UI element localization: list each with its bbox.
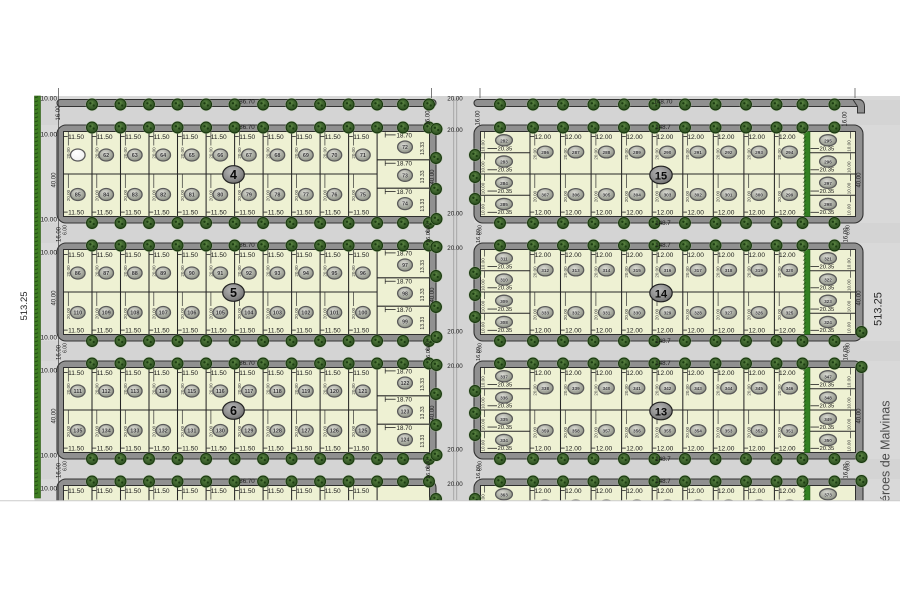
svg-text:40.00: 40.00 <box>857 172 863 188</box>
svg-text:305: 305 <box>602 193 610 198</box>
svg-text:20.00: 20.00 <box>655 266 660 278</box>
svg-text:11.50: 11.50 <box>125 134 141 141</box>
svg-text:11.50: 11.50 <box>211 446 227 453</box>
svg-text:20.00: 20.00 <box>594 308 599 320</box>
svg-text:12.00: 12.00 <box>779 252 796 259</box>
svg-text:20.00: 20.00 <box>777 426 782 438</box>
svg-text:11.50: 11.50 <box>211 328 227 335</box>
svg-text:82: 82 <box>160 193 166 199</box>
svg-text:20.00: 20.00 <box>594 384 599 396</box>
svg-text:20.00: 20.00 <box>716 384 721 396</box>
svg-text:96: 96 <box>360 271 366 277</box>
svg-text:12.00: 12.00 <box>718 370 735 377</box>
svg-text:13.33: 13.33 <box>420 406 426 419</box>
svg-text:10.00: 10.00 <box>481 182 486 194</box>
svg-text:287: 287 <box>572 150 580 155</box>
svg-text:126: 126 <box>330 429 339 435</box>
svg-text:20.00: 20.00 <box>746 308 751 320</box>
svg-text:128: 128 <box>273 429 282 435</box>
svg-text:6.00: 6.00 <box>846 225 852 235</box>
svg-text:20.35: 20.35 <box>820 446 835 452</box>
svg-text:92: 92 <box>246 271 252 277</box>
svg-text:20.00: 20.00 <box>624 384 629 396</box>
svg-text:40.00: 40.00 <box>52 408 58 424</box>
svg-text:115: 115 <box>187 389 196 395</box>
svg-text:11.50: 11.50 <box>97 252 113 259</box>
svg-text:20.35: 20.35 <box>498 307 513 313</box>
svg-text:91: 91 <box>217 271 223 277</box>
svg-text:283: 283 <box>500 160 508 165</box>
svg-text:20.00: 20.00 <box>447 481 463 488</box>
svg-text:106: 106 <box>187 311 196 317</box>
svg-text:10.00: 10.00 <box>481 279 486 291</box>
svg-text:40.00: 40.00 <box>857 408 863 424</box>
svg-text:12.00: 12.00 <box>779 210 796 217</box>
svg-text:71: 71 <box>360 153 366 159</box>
svg-text:11.50: 11.50 <box>268 370 284 377</box>
svg-text:350: 350 <box>824 438 832 443</box>
svg-text:11.50: 11.50 <box>125 328 141 335</box>
svg-text:330: 330 <box>633 311 641 316</box>
svg-text:20.35: 20.35 <box>820 307 835 313</box>
svg-text:12.00: 12.00 <box>779 446 796 453</box>
svg-text:20.00: 20.00 <box>685 308 690 320</box>
svg-text:302: 302 <box>694 193 702 198</box>
svg-text:40.00: 40.00 <box>430 405 436 421</box>
svg-text:12.00: 12.00 <box>565 370 582 377</box>
svg-text:20.00: 20.00 <box>594 190 599 202</box>
svg-text:67: 67 <box>246 153 252 159</box>
svg-text:314: 314 <box>602 268 610 273</box>
svg-text:20.35: 20.35 <box>498 328 513 334</box>
svg-text:11.50: 11.50 <box>182 210 198 217</box>
svg-text:97: 97 <box>402 263 408 269</box>
svg-text:20.00: 20.00 <box>563 308 568 320</box>
svg-text:76: 76 <box>331 193 337 199</box>
svg-text:132: 132 <box>159 429 168 435</box>
svg-text:20.00: 20.00 <box>447 211 463 218</box>
svg-text:11.50: 11.50 <box>182 134 198 141</box>
svg-text:111: 111 <box>74 389 83 395</box>
svg-text:12.00: 12.00 <box>718 252 735 259</box>
svg-text:308: 308 <box>500 320 508 325</box>
svg-text:12.00: 12.00 <box>626 446 643 453</box>
svg-text:10.00: 10.00 <box>481 440 486 452</box>
svg-text:11.50: 11.50 <box>68 252 84 259</box>
svg-text:11.50: 11.50 <box>68 488 84 495</box>
svg-text:122: 122 <box>401 381 410 387</box>
svg-text:20.00: 20.00 <box>624 266 629 278</box>
svg-text:148.7: 148.7 <box>655 124 671 131</box>
svg-text:148.7: 148.7 <box>655 338 671 345</box>
svg-text:11.50: 11.50 <box>97 370 113 377</box>
svg-text:118: 118 <box>273 389 282 395</box>
svg-text:78: 78 <box>274 193 280 199</box>
svg-text:12.00: 12.00 <box>749 488 766 495</box>
svg-text:11.50: 11.50 <box>182 252 198 259</box>
svg-text:11.50: 11.50 <box>211 488 227 495</box>
svg-text:110: 110 <box>73 311 82 317</box>
svg-text:107: 107 <box>159 311 168 317</box>
svg-text:75: 75 <box>360 193 366 199</box>
svg-text:12.00: 12.00 <box>626 328 643 335</box>
svg-text:20.35: 20.35 <box>820 264 835 270</box>
svg-text:10.00: 10.00 <box>41 217 58 224</box>
svg-text:20.00: 20.00 <box>447 245 463 252</box>
svg-text:342: 342 <box>664 386 672 391</box>
svg-text:20.00: 20.00 <box>594 426 599 438</box>
svg-text:12.00: 12.00 <box>687 252 704 259</box>
svg-text:11.50: 11.50 <box>68 134 84 141</box>
svg-text:11.50: 11.50 <box>268 252 284 259</box>
svg-text:4: 4 <box>230 168 237 182</box>
svg-text:10.00: 10.00 <box>41 96 58 103</box>
svg-text:119: 119 <box>301 389 310 395</box>
svg-text:346: 346 <box>786 386 794 391</box>
svg-text:20.35: 20.35 <box>498 189 513 195</box>
svg-text:20.00: 20.00 <box>655 190 660 202</box>
svg-text:328: 328 <box>694 311 702 316</box>
svg-text:358: 358 <box>572 429 580 434</box>
svg-text:20.35: 20.35 <box>498 264 513 270</box>
svg-text:282: 282 <box>500 138 508 143</box>
svg-text:326: 326 <box>755 311 763 316</box>
svg-text:148.7: 148.7 <box>655 242 671 249</box>
svg-text:12.00: 12.00 <box>596 488 613 495</box>
svg-text:12.00: 12.00 <box>749 370 766 377</box>
svg-text:11.50: 11.50 <box>182 370 198 377</box>
svg-text:127: 127 <box>301 429 310 435</box>
svg-text:6.00: 6.00 <box>426 341 432 351</box>
svg-text:15: 15 <box>655 171 667 183</box>
svg-text:12.00: 12.00 <box>687 134 704 141</box>
svg-text:11.50: 11.50 <box>211 210 227 217</box>
svg-text:303: 303 <box>664 193 672 198</box>
svg-text:10.00: 10.00 <box>847 322 852 334</box>
svg-text:10.00: 10.00 <box>481 322 486 334</box>
svg-text:10.00: 10.00 <box>41 132 58 139</box>
svg-text:77: 77 <box>303 193 309 199</box>
svg-text:20.00: 20.00 <box>746 266 751 278</box>
svg-text:10.00: 10.00 <box>481 204 486 216</box>
svg-text:11.50: 11.50 <box>154 446 170 453</box>
svg-text:102: 102 <box>301 311 310 317</box>
svg-text:286: 286 <box>541 150 549 155</box>
svg-text:11.50: 11.50 <box>125 488 141 495</box>
svg-text:86.70: 86.70 <box>239 99 255 106</box>
svg-text:20.00: 20.00 <box>746 426 751 438</box>
svg-text:324: 324 <box>824 320 832 325</box>
svg-text:74: 74 <box>402 202 408 208</box>
svg-text:20.00: 20.00 <box>777 384 782 396</box>
svg-text:12.00: 12.00 <box>596 252 613 259</box>
svg-text:20.35: 20.35 <box>820 210 835 216</box>
svg-text:11.50: 11.50 <box>97 328 113 335</box>
svg-text:6.00: 6.00 <box>63 343 69 353</box>
svg-text:101: 101 <box>330 311 339 317</box>
svg-text:295: 295 <box>824 138 832 143</box>
svg-text:11.50: 11.50 <box>154 252 170 259</box>
svg-text:12.00: 12.00 <box>749 134 766 141</box>
svg-text:11.50: 11.50 <box>353 210 369 217</box>
svg-text:130: 130 <box>216 429 225 435</box>
svg-text:284: 284 <box>500 181 508 186</box>
svg-text:100: 100 <box>358 311 367 317</box>
svg-text:296: 296 <box>824 160 832 165</box>
svg-text:16.00: 16.00 <box>476 110 482 126</box>
svg-text:83: 83 <box>132 193 138 199</box>
svg-text:336: 336 <box>500 396 508 401</box>
svg-text:80: 80 <box>217 193 223 199</box>
svg-text:20.00: 20.00 <box>716 190 721 202</box>
svg-text:11.50: 11.50 <box>97 210 113 217</box>
svg-text:14: 14 <box>655 289 668 301</box>
svg-text:11.50: 11.50 <box>68 446 84 453</box>
svg-text:12.00: 12.00 <box>718 488 735 495</box>
svg-text:12.00: 12.00 <box>749 446 766 453</box>
svg-text:10.00: 10.00 <box>847 258 852 270</box>
svg-text:11.50: 11.50 <box>154 488 170 495</box>
svg-text:5: 5 <box>230 286 237 300</box>
svg-text:12.00: 12.00 <box>687 446 704 453</box>
svg-text:6.00: 6.00 <box>63 225 69 235</box>
svg-text:13.33: 13.33 <box>420 170 426 183</box>
svg-text:285: 285 <box>500 202 508 207</box>
svg-text:11.50: 11.50 <box>353 328 369 335</box>
svg-text:363: 363 <box>500 492 508 497</box>
svg-text:334: 334 <box>500 438 508 443</box>
svg-text:87: 87 <box>103 271 109 277</box>
svg-text:64: 64 <box>160 153 167 159</box>
svg-text:332: 332 <box>572 311 580 316</box>
svg-text:11.50: 11.50 <box>182 446 198 453</box>
svg-text:20.00: 20.00 <box>746 190 751 202</box>
svg-text:331: 331 <box>602 311 610 316</box>
svg-text:351: 351 <box>786 429 794 434</box>
svg-text:10.00: 10.00 <box>847 279 852 291</box>
svg-text:12.00: 12.00 <box>535 252 552 259</box>
svg-text:12.00: 12.00 <box>779 328 796 335</box>
svg-text:11.50: 11.50 <box>296 446 312 453</box>
svg-text:20.35: 20.35 <box>820 189 835 195</box>
svg-text:12.00: 12.00 <box>687 370 704 377</box>
svg-text:10.00: 10.00 <box>847 204 852 216</box>
svg-text:112: 112 <box>102 389 111 395</box>
svg-text:10.00: 10.00 <box>41 453 58 460</box>
svg-text:12.00: 12.00 <box>657 446 674 453</box>
svg-text:11.50: 11.50 <box>211 134 227 141</box>
svg-text:10.00: 10.00 <box>481 418 486 430</box>
svg-text:120: 120 <box>330 389 339 395</box>
svg-text:317: 317 <box>694 268 702 273</box>
svg-text:10.00: 10.00 <box>847 300 852 312</box>
svg-text:11.50: 11.50 <box>239 488 255 495</box>
svg-text:12.00: 12.00 <box>535 446 552 453</box>
svg-text:18.70: 18.70 <box>397 425 413 432</box>
svg-text:134: 134 <box>102 429 112 435</box>
svg-text:10.00: 10.00 <box>847 440 852 452</box>
svg-text:11.50: 11.50 <box>353 488 369 495</box>
svg-text:11.50: 11.50 <box>325 446 341 453</box>
svg-text:11.50: 11.50 <box>353 446 369 453</box>
svg-text:355: 355 <box>664 429 672 434</box>
svg-text:20.35: 20.35 <box>820 382 835 388</box>
svg-text:11.50: 11.50 <box>154 328 170 335</box>
svg-text:69: 69 <box>303 153 309 159</box>
svg-text:345: 345 <box>755 386 763 391</box>
svg-text:20.00: 20.00 <box>716 266 721 278</box>
svg-text:341: 341 <box>633 386 641 391</box>
svg-text:12.00: 12.00 <box>596 134 613 141</box>
svg-text:11.50: 11.50 <box>239 328 255 335</box>
svg-text:72: 72 <box>402 145 408 151</box>
svg-text:10.00: 10.00 <box>847 418 852 430</box>
svg-text:18.70: 18.70 <box>397 279 413 286</box>
svg-text:131: 131 <box>187 429 196 435</box>
svg-text:20.00: 20.00 <box>746 148 751 160</box>
svg-text:13.33: 13.33 <box>420 260 426 273</box>
svg-text:6.00: 6.00 <box>63 461 69 471</box>
svg-text:10.00: 10.00 <box>41 368 58 375</box>
svg-text:20.00: 20.00 <box>777 148 782 160</box>
svg-text:66: 66 <box>217 153 223 159</box>
svg-text:10.00: 10.00 <box>481 258 486 270</box>
svg-text:20.35: 20.35 <box>498 425 513 431</box>
svg-text:123: 123 <box>401 409 410 415</box>
svg-text:20.00: 20.00 <box>777 190 782 202</box>
svg-text:20.35: 20.35 <box>498 286 513 292</box>
svg-text:18.70: 18.70 <box>397 307 413 314</box>
svg-text:12.00: 12.00 <box>749 328 766 335</box>
svg-text:12.00: 12.00 <box>779 488 796 495</box>
svg-text:10.00: 10.00 <box>481 397 486 409</box>
svg-text:20.00: 20.00 <box>655 308 660 320</box>
svg-text:13.33: 13.33 <box>420 435 426 448</box>
svg-text:12.00: 12.00 <box>657 252 674 259</box>
svg-text:20.00: 20.00 <box>655 148 660 160</box>
svg-text:312: 312 <box>541 268 549 273</box>
svg-text:10.00: 10.00 <box>41 335 58 342</box>
svg-text:349: 349 <box>824 417 832 422</box>
svg-text:11.50: 11.50 <box>296 210 312 217</box>
svg-text:339: 339 <box>572 386 580 391</box>
svg-text:84: 84 <box>103 193 110 199</box>
svg-text:20.00: 20.00 <box>447 329 463 336</box>
svg-text:20.35: 20.35 <box>820 168 835 174</box>
svg-text:20.00: 20.00 <box>685 190 690 202</box>
svg-text:322: 322 <box>824 278 832 283</box>
svg-text:20.00: 20.00 <box>563 384 568 396</box>
svg-text:12.00: 12.00 <box>596 446 613 453</box>
svg-text:343: 343 <box>694 386 702 391</box>
svg-text:12.00: 12.00 <box>718 446 735 453</box>
svg-text:10.00: 10.00 <box>847 182 852 194</box>
svg-text:12.00: 12.00 <box>535 210 552 217</box>
svg-text:319: 319 <box>755 268 763 273</box>
svg-text:20.00: 20.00 <box>655 426 660 438</box>
svg-text:86.70: 86.70 <box>239 124 255 131</box>
svg-text:12.00: 12.00 <box>626 488 643 495</box>
svg-text:20.00: 20.00 <box>594 266 599 278</box>
svg-text:309: 309 <box>500 299 508 304</box>
svg-text:89: 89 <box>160 271 166 277</box>
svg-text:11.50: 11.50 <box>68 370 84 377</box>
svg-text:327: 327 <box>725 311 733 316</box>
svg-text:20.00: 20.00 <box>685 384 690 396</box>
svg-text:20.00: 20.00 <box>563 426 568 438</box>
svg-text:11.50: 11.50 <box>325 328 341 335</box>
svg-text:11.50: 11.50 <box>154 370 170 377</box>
svg-text:12.00: 12.00 <box>779 370 796 377</box>
svg-text:18.70: 18.70 <box>397 189 413 196</box>
svg-text:6: 6 <box>230 404 237 418</box>
svg-text:353: 353 <box>725 429 733 434</box>
svg-text:11.50: 11.50 <box>182 488 198 495</box>
svg-text:86: 86 <box>75 271 81 277</box>
svg-text:348: 348 <box>824 396 832 401</box>
svg-text:12.00: 12.00 <box>779 134 796 141</box>
svg-text:94: 94 <box>303 271 310 277</box>
svg-text:20.00: 20.00 <box>563 266 568 278</box>
svg-text:88: 88 <box>132 271 138 277</box>
svg-text:13: 13 <box>655 407 667 419</box>
svg-text:6.00: 6.00 <box>478 225 484 235</box>
svg-text:86.70: 86.70 <box>239 242 255 249</box>
svg-text:321: 321 <box>824 256 832 261</box>
svg-text:20.00: 20.00 <box>685 148 690 160</box>
svg-text:10.00: 10.00 <box>847 376 852 388</box>
svg-text:338: 338 <box>541 386 549 391</box>
svg-text:12.00: 12.00 <box>687 488 704 495</box>
svg-text:11.50: 11.50 <box>97 446 113 453</box>
svg-text:18.70: 18.70 <box>397 397 413 404</box>
svg-text:114: 114 <box>159 389 169 395</box>
svg-text:11.50: 11.50 <box>239 370 255 377</box>
svg-text:20.35: 20.35 <box>820 328 835 334</box>
svg-text:354: 354 <box>694 429 702 434</box>
svg-text:13.33: 13.33 <box>420 199 426 212</box>
svg-text:12.00: 12.00 <box>657 370 674 377</box>
svg-text:11.50: 11.50 <box>68 210 84 217</box>
svg-text:113: 113 <box>130 389 139 395</box>
svg-text:20.00: 20.00 <box>532 190 537 202</box>
svg-text:20.00: 20.00 <box>447 96 463 103</box>
svg-text:148.7: 148.7 <box>655 456 671 463</box>
svg-text:12.00: 12.00 <box>565 488 582 495</box>
svg-text:10.00: 10.00 <box>481 300 486 312</box>
svg-text:20.00: 20.00 <box>624 426 629 438</box>
svg-text:73: 73 <box>402 173 408 179</box>
svg-text:20.35: 20.35 <box>820 286 835 292</box>
svg-text:12.00: 12.00 <box>535 134 552 141</box>
svg-text:108: 108 <box>130 311 139 317</box>
svg-text:329: 329 <box>664 311 672 316</box>
svg-text:148.7: 148.7 <box>655 478 671 485</box>
svg-text:513.25: 513.25 <box>873 292 885 326</box>
svg-text:289: 289 <box>633 150 641 155</box>
svg-text:11.50: 11.50 <box>125 370 141 377</box>
svg-text:12.00: 12.00 <box>565 328 582 335</box>
svg-text:40.00: 40.00 <box>52 172 58 188</box>
svg-text:306: 306 <box>572 193 580 198</box>
svg-text:11.50: 11.50 <box>68 328 84 335</box>
svg-text:6.00: 6.00 <box>846 461 852 471</box>
svg-text:6.00: 6.00 <box>478 343 484 353</box>
svg-text:373: 373 <box>824 492 832 497</box>
svg-text:20.35: 20.35 <box>498 210 513 216</box>
svg-text:12.00: 12.00 <box>535 488 552 495</box>
svg-text:20.00: 20.00 <box>532 384 537 396</box>
